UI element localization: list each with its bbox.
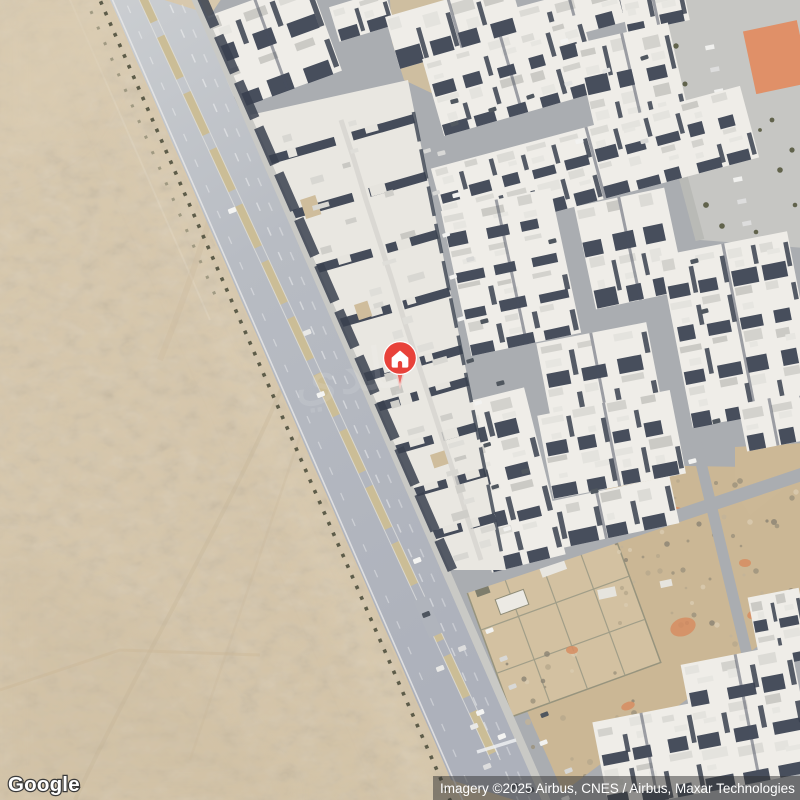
svg-text:Google: Google [8,773,80,796]
svg-text:Imagery ©2025 Airbus, CNES / A: Imagery ©2025 Airbus, CNES / Airbus, Max… [440,781,795,796]
